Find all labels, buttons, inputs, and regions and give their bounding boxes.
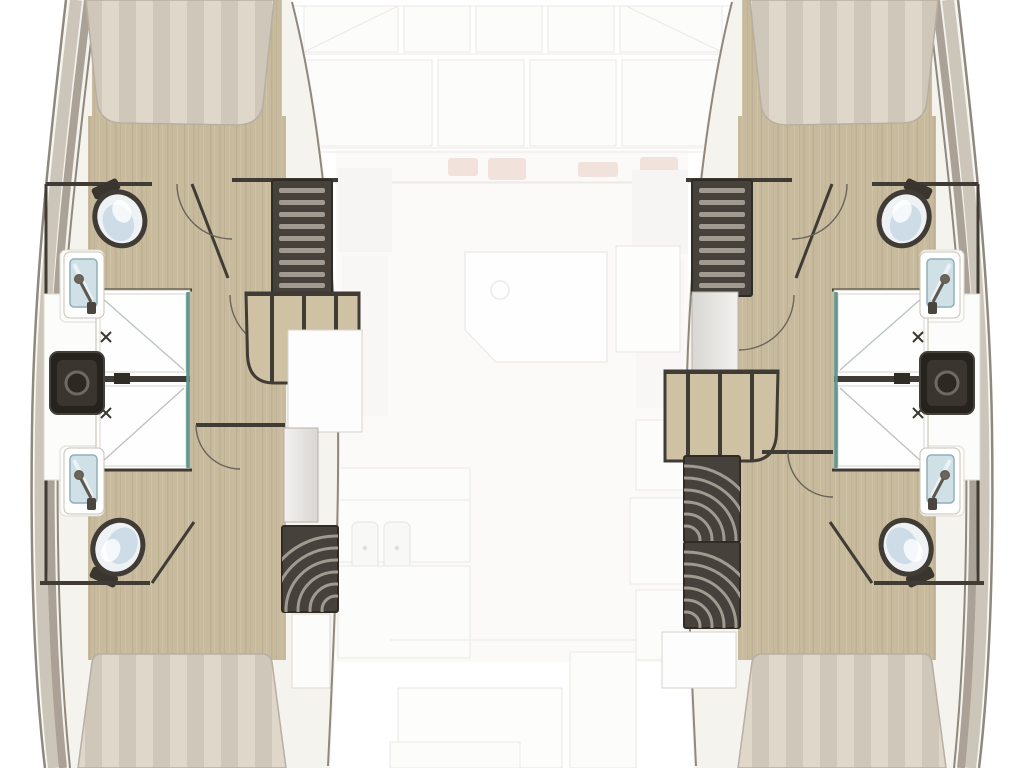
starboard-bulkhead-ghost	[632, 170, 688, 254]
floorplan-canvas	[0, 0, 1024, 768]
starboard-forward-shower-fixture	[920, 252, 960, 318]
saloon-table	[465, 252, 607, 362]
side-seat	[616, 246, 680, 352]
port-aft-berth-bed	[78, 654, 286, 768]
port-berth-extension	[288, 330, 362, 432]
starboard-companionway-steps	[665, 370, 778, 461]
cushion	[448, 158, 478, 176]
port-aft-shower-fixture	[64, 448, 104, 514]
starboard-forward-berth-bed	[750, 0, 938, 125]
port-wardrobe-panel	[284, 428, 318, 522]
catamaran-floorplan-svg	[0, 0, 1024, 768]
port-sink-vanity	[50, 352, 104, 414]
port-ladder-steps	[272, 180, 332, 296]
starboard-berth-extension	[662, 632, 736, 688]
port-forward-berth-bed	[86, 0, 274, 125]
port-aft-locker	[292, 614, 330, 688]
port-bulkhead-ghost	[338, 168, 392, 252]
port-forward-shower-fixture	[64, 252, 104, 318]
port-shower-stall	[96, 290, 190, 470]
starboard-aft-berth-bed	[738, 654, 946, 768]
starboard-shower-stall	[834, 290, 928, 470]
cushion	[488, 158, 526, 180]
starboard-ladder-steps	[692, 180, 752, 296]
starboard-sink-vanity	[920, 352, 974, 414]
starboard-aft-shower-fixture	[920, 448, 960, 514]
cushion	[578, 162, 618, 177]
